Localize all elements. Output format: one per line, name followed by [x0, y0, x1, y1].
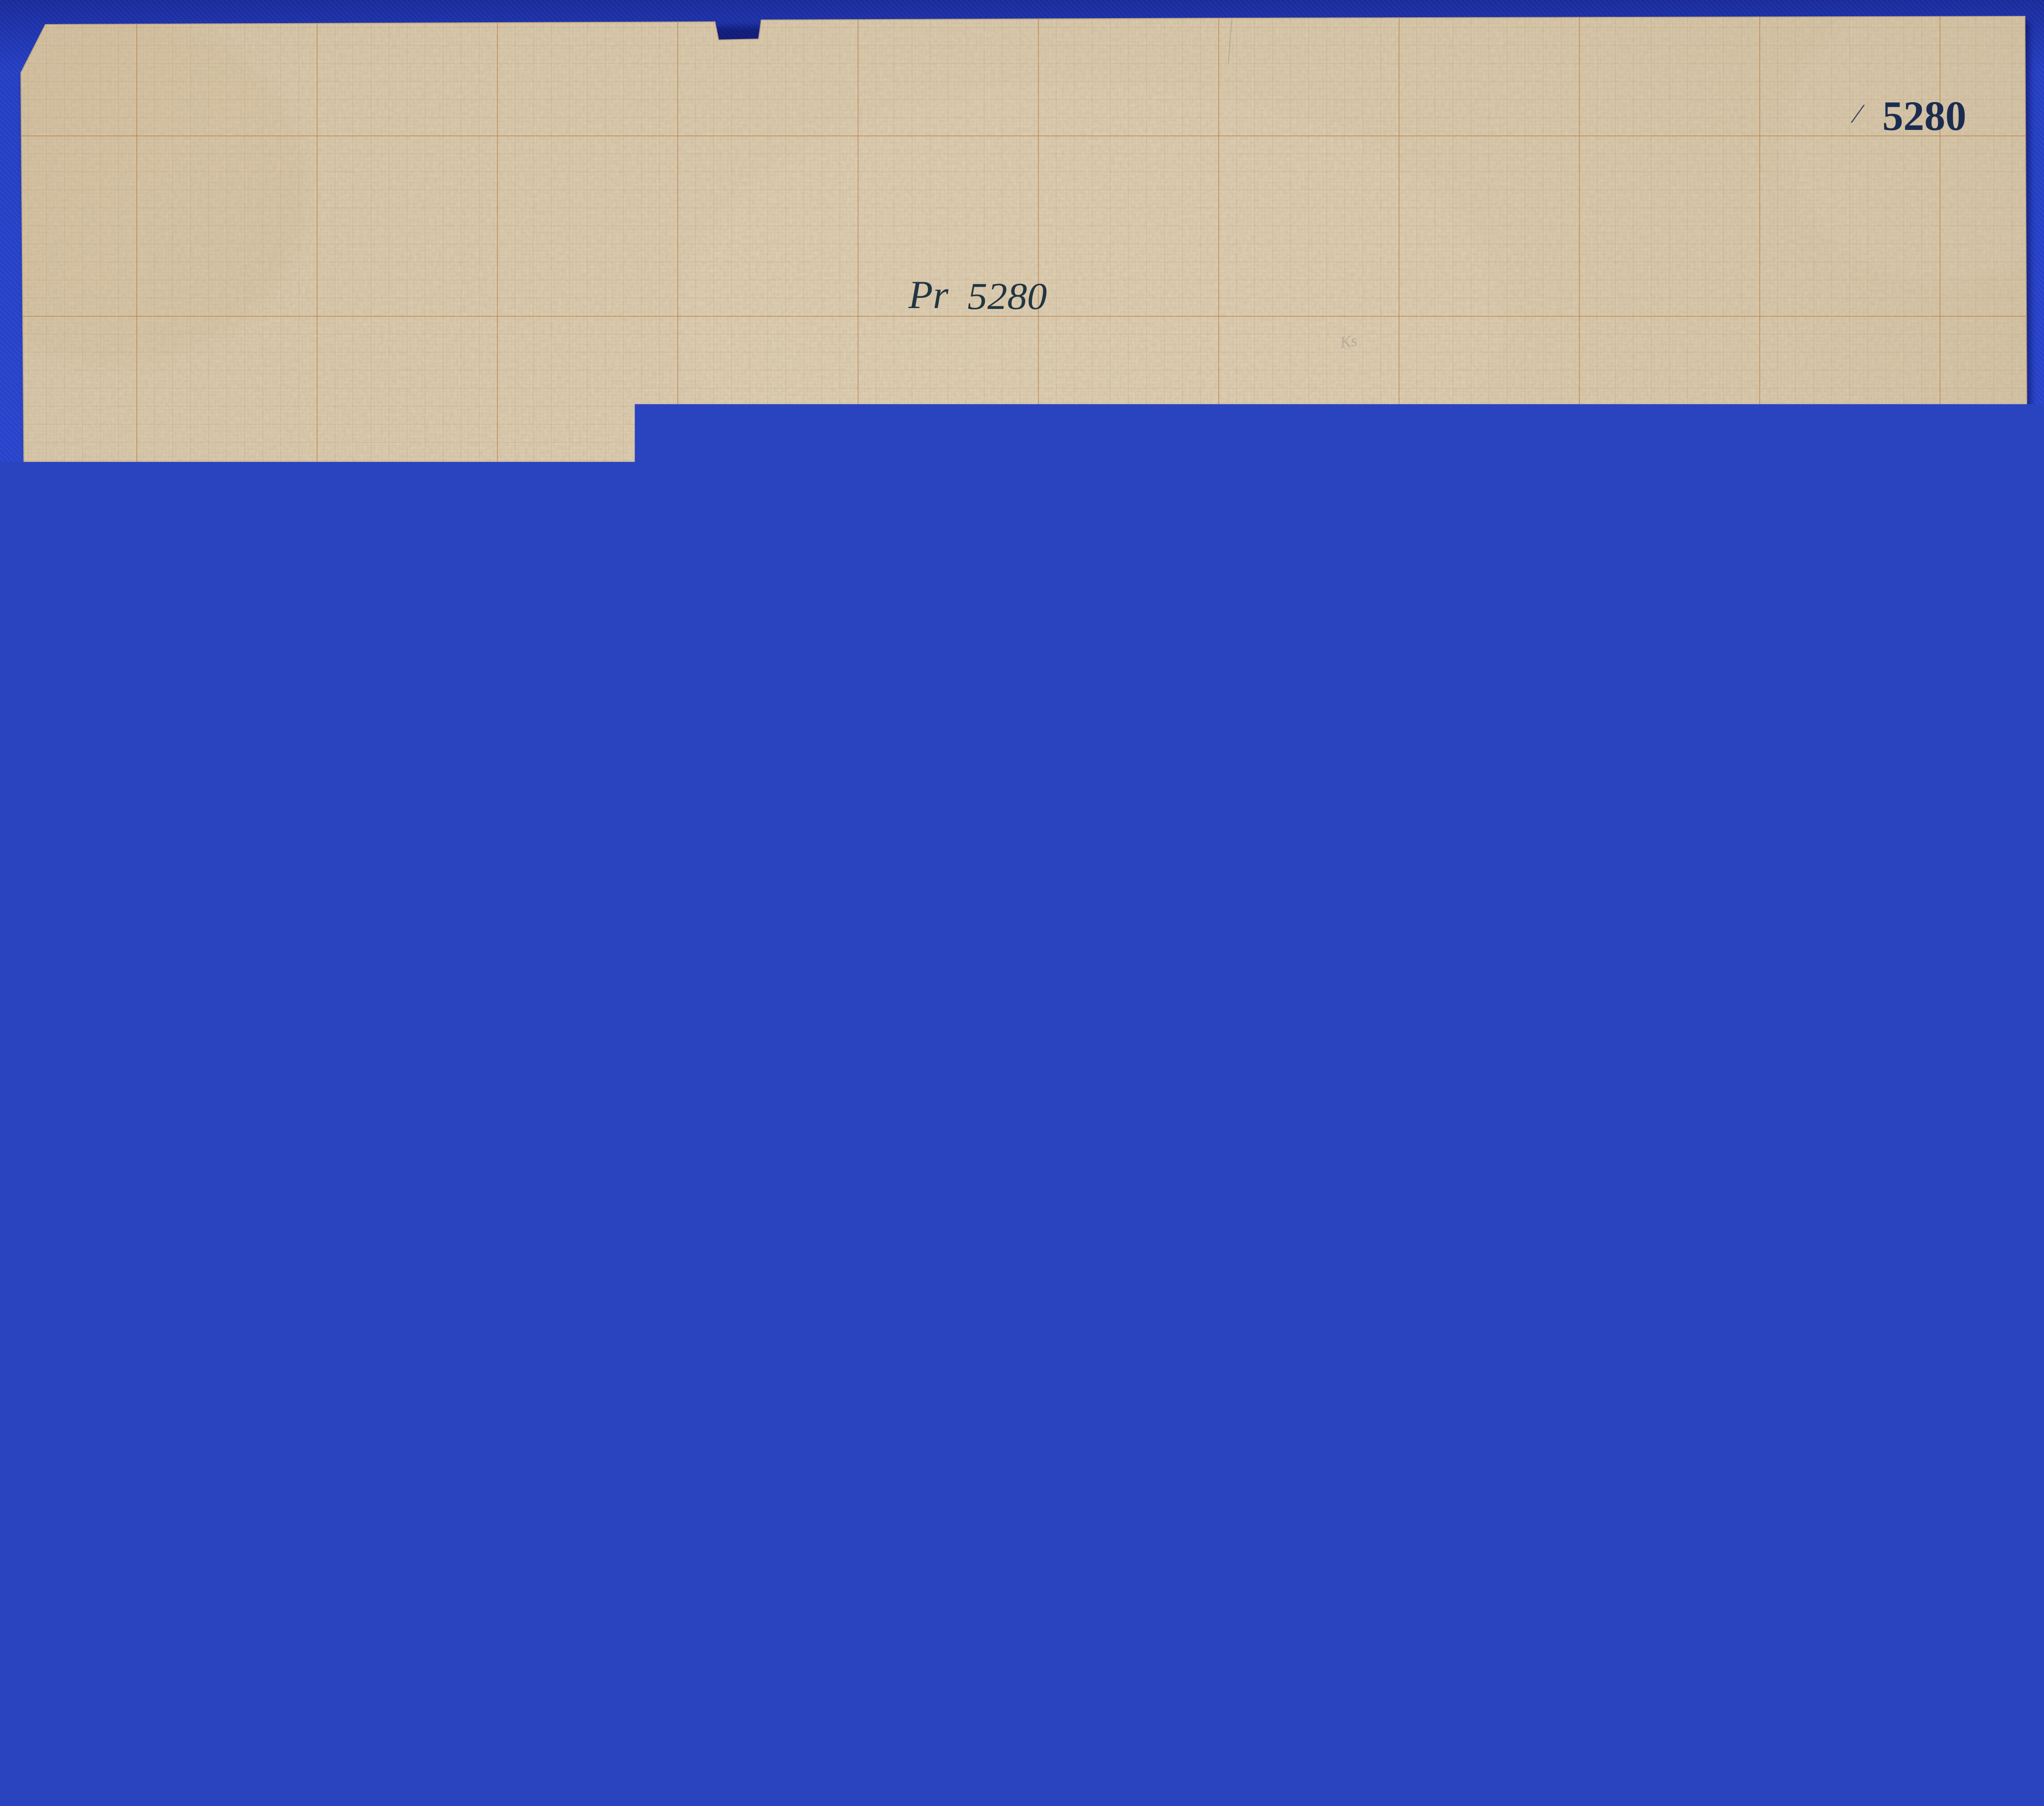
- svg-text:(13): (13): [607, 949, 628, 963]
- svg-text:97.40: 97.40: [1755, 993, 1823, 1025]
- svg-text:8.00: 8.00: [214, 1572, 245, 1592]
- svg-text:1.4: 1.4: [731, 825, 747, 839]
- svg-text:10.50: 10.50: [940, 1299, 980, 1313]
- svg-text:6.00: 6.00: [1879, 1582, 1910, 1601]
- svg-text:(8): (8): [268, 879, 282, 893]
- svg-text:2.3: 2.3: [1290, 1372, 1306, 1386]
- svg-text:1.6: 1.6: [1214, 1370, 1229, 1384]
- svg-text:3.10: 3.10: [826, 1403, 851, 1418]
- svg-text:20.00: 20.00: [810, 1576, 849, 1595]
- svg-text:5.0: 5.0: [1057, 1369, 1073, 1383]
- svg-text:JANVIER 1888: JANVIER 1888: [294, 1397, 439, 1425]
- svg-text:54°: 54°: [277, 897, 293, 911]
- svg-text:3.0: 3.0: [1040, 829, 1057, 843]
- svg-text:5.00: 5.00: [536, 1401, 560, 1416]
- svg-text:5280: 5280: [1882, 93, 1966, 139]
- svg-text:2.2: 2.2: [1251, 1371, 1267, 1385]
- svg-text:Pr: Pr: [908, 273, 949, 317]
- svg-text:2.3: 2.3: [1289, 831, 1305, 845]
- svg-text:(2): (2): [708, 1143, 725, 1159]
- svg-text:5280: 5280: [967, 275, 1047, 318]
- svg-text:1.5: 1.5: [1323, 1372, 1339, 1386]
- svg-text:Ks: Ks: [1339, 331, 1359, 352]
- svg-text:11.97: 11.97: [1117, 1409, 1151, 1428]
- svg-text:1.2: 1.2: [1346, 1373, 1362, 1387]
- svg-text:10.0: 10.0: [923, 828, 945, 842]
- svg-text:2.1: 2.1: [1250, 831, 1266, 845]
- svg-text:V. A′: V. A′: [1555, 975, 1592, 998]
- svg-text:1.5: 1.5: [699, 825, 715, 839]
- svg-text:10.50: 10.50: [1109, 1297, 1149, 1312]
- svg-text:2.80: 2.80: [740, 1402, 764, 1417]
- svg-text:2.2: 2.2: [1327, 831, 1343, 846]
- svg-text:(2): (2): [1330, 1149, 1347, 1165]
- svg-text:0.8: 0.8: [1198, 1370, 1214, 1384]
- svg-text:20.00: 20.00: [1656, 1582, 1691, 1598]
- svg-text:AOUT 1889: AOUT 1889: [544, 803, 657, 828]
- svg-text:3.60: 3.60: [883, 1404, 907, 1419]
- svg-text:21.00: 21.00: [437, 1574, 476, 1593]
- svg-text:5.00: 5.00: [952, 1404, 976, 1419]
- svg-text:7.00: 7.00: [1407, 1580, 1437, 1599]
- svg-text:2.00: 2.00: [786, 1403, 810, 1418]
- svg-text:43 70: 43 70: [1751, 1030, 1824, 1063]
- svg-text:4.00: 4.00: [111, 1572, 141, 1591]
- svg-text:2.5: 2.5: [764, 826, 780, 840]
- svg-text:20.00: 20.00: [1167, 1578, 1206, 1597]
- svg-text:3.0: 3.0: [1094, 829, 1110, 843]
- svg-text:5.0: 5.0: [1146, 1370, 1161, 1384]
- svg-text:3.3: 3.3: [1201, 830, 1217, 844]
- svg-text:2.80: 2.80: [1290, 1417, 1311, 1430]
- svg-text:3.0: 3.0: [812, 826, 829, 841]
- svg-text:1.5: 1.5: [1367, 1373, 1382, 1387]
- svg-text:8.00: 8.00: [648, 1402, 672, 1417]
- svg-text:3.0: 3.0: [1147, 830, 1164, 844]
